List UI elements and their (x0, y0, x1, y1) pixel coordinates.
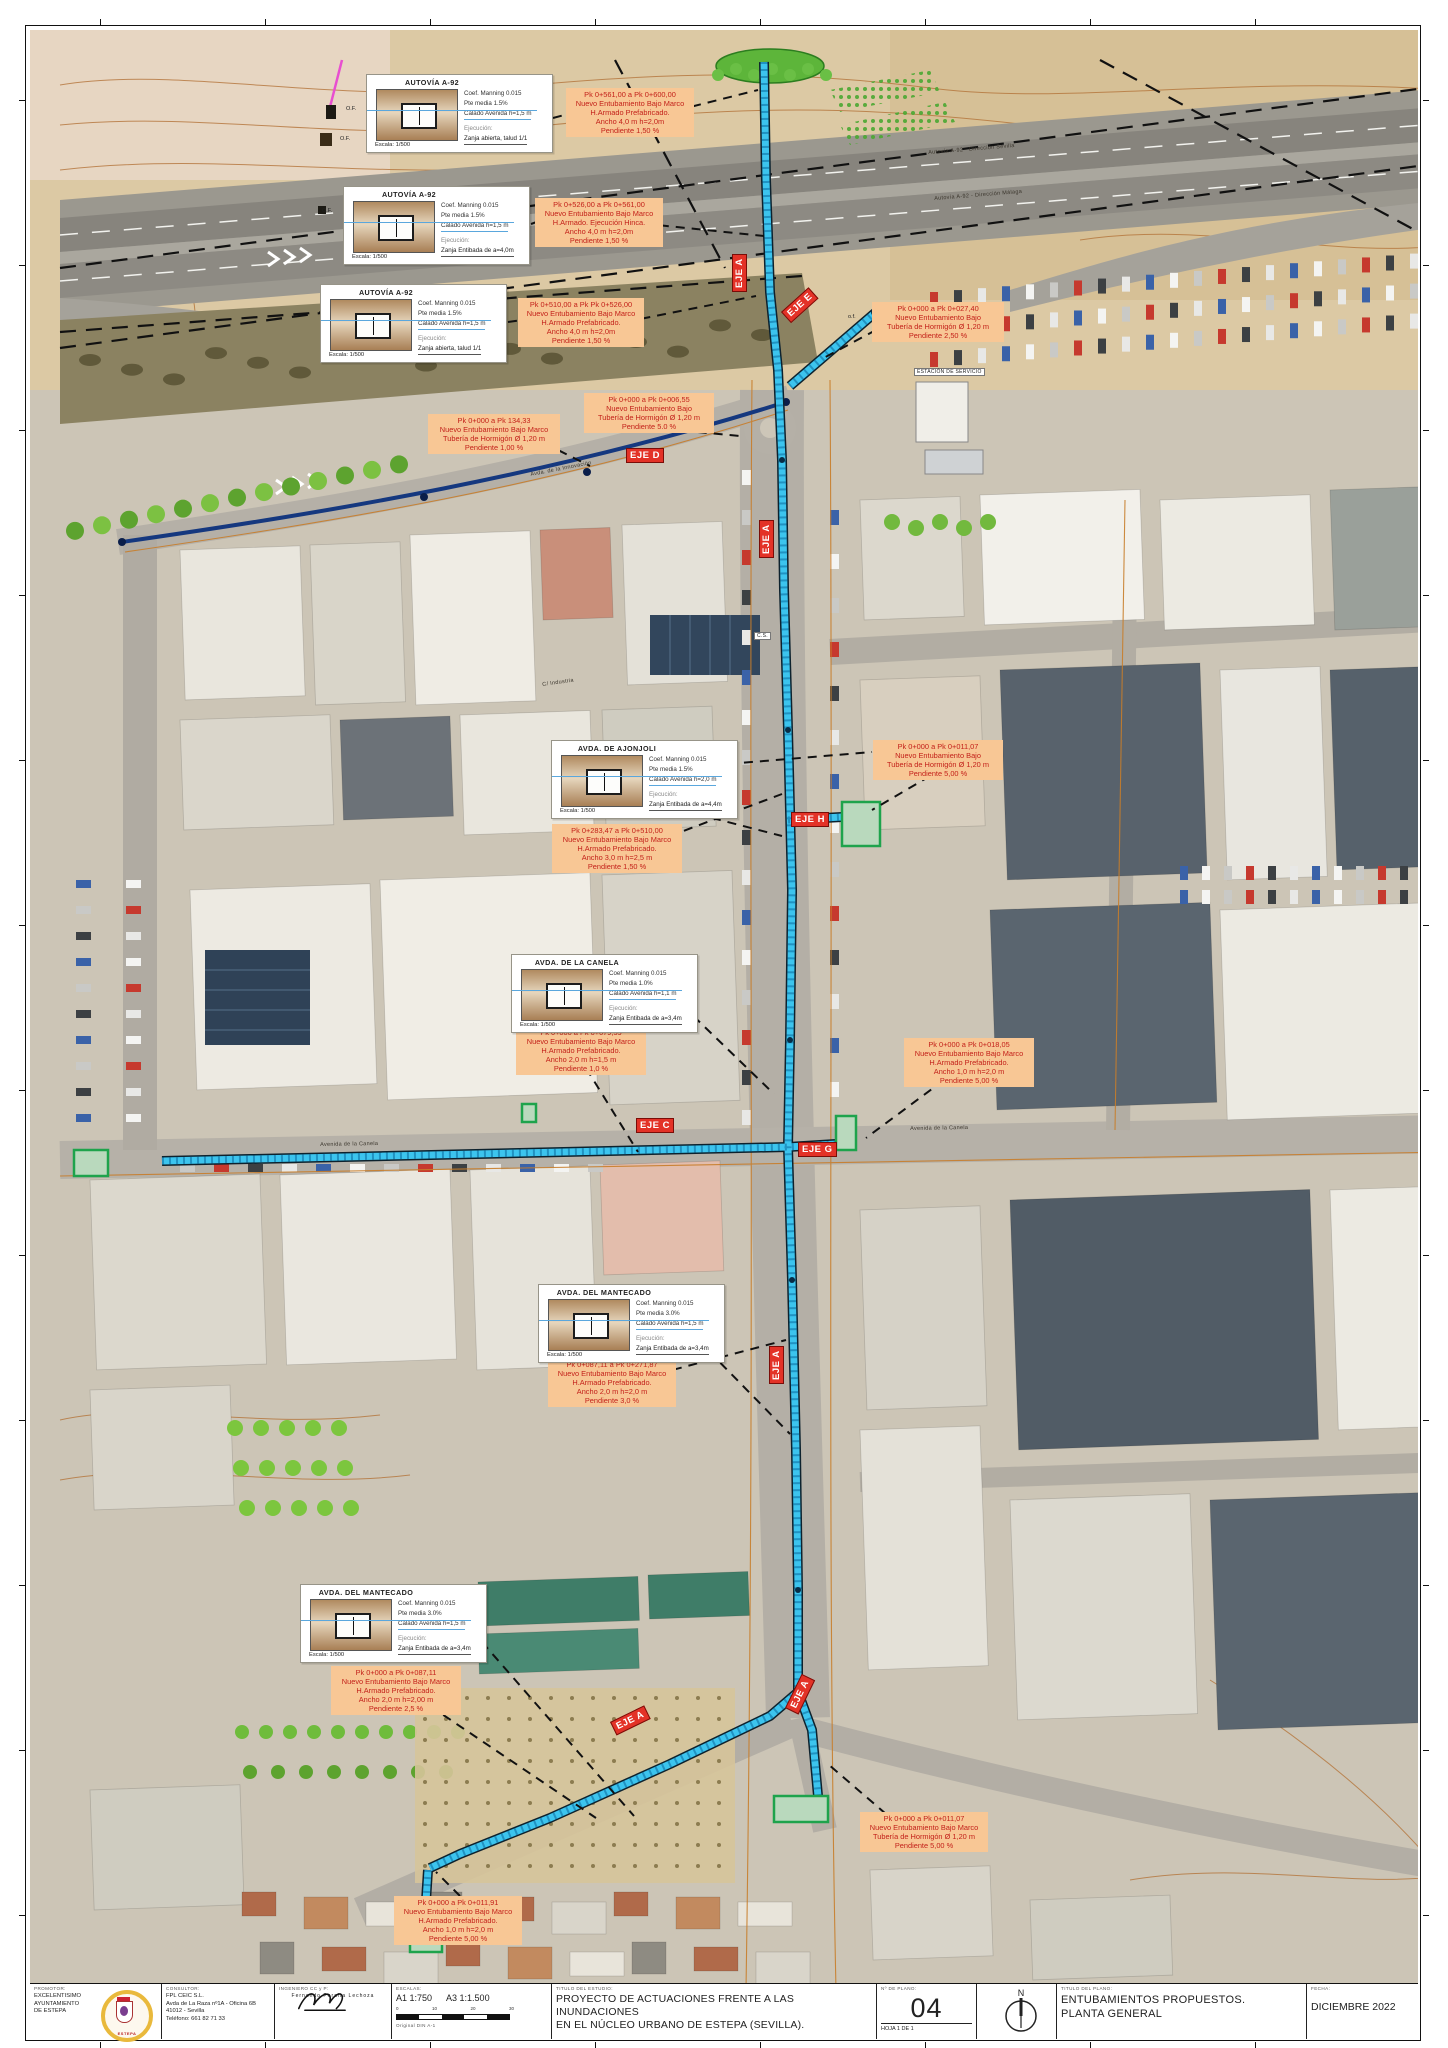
section-specs: Coef. Manning 0.015Pte media 3.0%Calado … (398, 1599, 484, 1655)
pte-media: Pte media 3.0% (636, 1309, 722, 1319)
pk-annotation-11: Pk 0+087,11 a Pk 0+271,87Nuevo Entubamie… (548, 1358, 676, 1407)
pk-annotation-line: Pk 0+000 a Pk 0+087,11 (334, 1668, 458, 1677)
estepa-coat-of-arms: ESTEPA (101, 1990, 153, 2042)
coef-manning: Coef. Manning 0.015 (418, 299, 504, 309)
box-culvert-icon (546, 983, 582, 1009)
escala-note: Escala: 1/500 (352, 254, 387, 260)
pk-annotation-line: H.Armado Prefabricado. (569, 108, 691, 117)
pk-annotation-line: Ancho 4,0 m h=2,0m (521, 327, 641, 336)
box-culvert-icon (573, 1313, 609, 1339)
pk-annotation-line: Pk 0+000 a Pk 0+011,07 (876, 742, 1000, 751)
escala-note: Escala: 1/500 (375, 142, 410, 148)
pk-annotation-line: H.Armado Prefabricado. (551, 1378, 673, 1387)
titulo-plano-line-1: ENTUBAMIENTOS PROPUESTOS. (1061, 1993, 1302, 2007)
pk-annotation-line: Tubería de Hormigón Ø 1,20 m (876, 760, 1000, 769)
escala-a1: A1 1:750 (396, 1993, 432, 2003)
pk-annotation-14: Pk 0+000 a Pk 0+011,91Nuevo Entubamiento… (394, 1896, 522, 1945)
box-culvert-icon (335, 1613, 371, 1639)
pk-annotation-line: Pendiente 2,5 % (334, 1704, 458, 1713)
street-label-6: Avenida de la Canela (910, 1125, 968, 1132)
scalebar-tick: 20 (470, 2006, 475, 2011)
titulo-estudio-label: TITULO DEL ESTUDIO: (556, 1986, 872, 1991)
cross-section-drawing (330, 299, 412, 351)
ejecucion-value: Zanja abierta, talud 1/1 (464, 134, 550, 145)
water-level-line (301, 1620, 471, 1621)
cross-section-drawing (310, 1599, 392, 1651)
coef-manning: Coef. Manning 0.015 (464, 89, 550, 99)
section-specs: Coef. Manning 0.015Pte media 3.0%Calado … (636, 1299, 722, 1355)
of-marker-3: O.F. (322, 208, 332, 214)
cross-section-box-4: AVDA. DE AJONJOLICoef. Manning 0.015Pte … (551, 740, 738, 819)
cross-section-drawing (521, 969, 603, 1021)
pk-annotation-line: Tubería de Hormigón Ø 1,20 m (875, 322, 1001, 331)
escala-note: Escala: 1/500 (520, 1022, 555, 1028)
pk-annotation-line: Pendiente 1,50 % (538, 236, 660, 245)
scale-bar (396, 2014, 510, 2020)
eje-label-eje-a: EJE A (732, 254, 747, 292)
pk-annotation-line: H.Armado Prefabricado. (907, 1058, 1031, 1067)
pk-annotation-line: H.Armado Prefabricado. (397, 1916, 519, 1925)
consultor-cell: CONSULTOR: FPL CEIC S.L. Avda de La Raza… (162, 1984, 275, 2039)
titulo-estudio-line-1: PROYECTO DE ACTUACIONES FRENTE A LAS INU… (556, 1993, 872, 2019)
consultor-line-4: Teléfono: 661 82 71 33 (166, 2016, 270, 2024)
scalebar-tick: 0 (396, 2006, 399, 2011)
escalas-label: ESCALAS: (396, 1986, 547, 1991)
eje-label-eje-g: EJE G (798, 1142, 837, 1157)
pk-annotation-3: Pk 0+510,00 a Pk Pk 0+526,00Nuevo Entuba… (518, 298, 644, 347)
ejecucion-label: Ejecución: (464, 124, 550, 134)
titulo-plano-line-2: PLANTA GENERAL (1061, 2007, 1302, 2021)
pk-annotation-4: Pk 0+000 a Pk 0+027,40Nuevo Entubamiento… (872, 302, 1004, 342)
pk-annotation-line: Pk 0+000 a Pk 0+018,05 (907, 1040, 1031, 1049)
scalebar-ticks: 0102030 (396, 2006, 514, 2011)
titulo-estudio-cell: TITULO DEL ESTUDIO: PROYECTO DE ACTUACIO… (552, 1984, 877, 2039)
pk-annotation-line: Ancho 4,0 m h=2,0m (538, 227, 660, 236)
pk-annotation-5: Pk 0+000 a Pk 134,33Nuevo Entubamiento B… (428, 414, 560, 454)
fecha-value: DICIEMBRE 2022 (1311, 2001, 1414, 2013)
water-level-line (512, 990, 682, 991)
eje-label-eje-c: EJE C (636, 1118, 674, 1133)
cross-section-box-3: AUTOVÍA A-92Coef. Manning 0.015Pte media… (320, 284, 507, 363)
pk-annotation-line: Pendiente 1,50 % (555, 862, 679, 871)
titulo-plano-label: TITULO DEL PLANO: (1061, 1986, 1302, 1991)
pk-annotation-line: Tubería de Hormigón Ø 1,20 m (587, 413, 711, 422)
pk-annotation-13: Pk 0+000 a Pk 0+011,07Nuevo Entubamiento… (860, 1812, 988, 1852)
titulo-plano-cell: TITULO DEL PLANO: ENTUBAMIENTOS PROPUEST… (1057, 1984, 1307, 2039)
water-level-line (539, 1320, 709, 1321)
section-title: AUTOVÍA A-92 (354, 190, 464, 199)
scalebar-tick: 30 (509, 2006, 514, 2011)
pk-annotation-line: Nuevo Entubamiento Bajo Marco (555, 835, 679, 844)
plan-sheet: EJE AEJE EEJE DEJE AEJE HEJE CEJE GEJE A… (0, 0, 1448, 2048)
street-label-8: C.S. (754, 632, 771, 640)
title-block: PROMOTOR: EXCELENTISIMO AYUNTAMIENTO DE … (30, 1983, 1418, 2039)
pk-annotation-line: H.Armado Prefabricado. (334, 1686, 458, 1695)
consultor-line-1: FPL CEIC S.L. (166, 1993, 270, 2001)
sheet-frame (25, 25, 1421, 2041)
pk-annotation-line: Ancho 1,0 m h=2,0 m (397, 1925, 519, 1934)
north-letter: N (1018, 1988, 1025, 1998)
promotor-label: PROMOTOR: (34, 1986, 157, 1991)
water-level-line (552, 776, 722, 777)
pk-annotation-line: Pendiente 5,00 % (907, 1076, 1031, 1085)
ejecucion-value: Zanja Entibada de a=3,4m (636, 1344, 722, 1355)
consultor-label: CONSULTOR: (166, 1986, 270, 1991)
pk-annotation-8: Pk 0+283,47 a Pk 0+510,00Nuevo Entubamie… (552, 824, 682, 873)
num-plano-cell: Nº DE PLANO: 04 HOJA 1 DE 1 (877, 1984, 977, 2039)
pk-annotation-line: Ancho 2,0 m h=1,5 m (519, 1055, 643, 1064)
coef-manning: Coef. Manning 0.015 (609, 969, 695, 979)
of-marker-1: O.F. (346, 106, 356, 112)
pk-annotation-line: Nuevo Entubamiento Bajo (587, 404, 711, 413)
pk-annotation-line: Pendiente 3,0 % (551, 1396, 673, 1405)
pk-annotation-line: Tubería de Hormigón Ø 1,20 m (863, 1832, 985, 1841)
ejecucion-value: Zanja Entibada de a=4,0m (441, 246, 527, 257)
ingeniero-cell: INGENIERO CC y P: Fernando Peralta Lecho… (275, 1984, 392, 2039)
fecha-cell: FECHA: DICIEMBRE 2022 (1307, 1984, 1418, 2039)
pk-annotation-line: Pk 0+510,00 a Pk Pk 0+526,00 (521, 300, 641, 309)
ejecucion-label: Ejecución: (398, 1634, 484, 1644)
pk-annotation-line: Ancho 1,0 m h=2,0 m (907, 1067, 1031, 1076)
box-culvert-icon (401, 103, 437, 129)
pk-annotation-line: Pk 0+561,00 a Pk 0+600,00 (569, 90, 691, 99)
pk-annotation-line: Pk 0+526,00 a Pk 0+561,00 (538, 200, 660, 209)
ejecucion-value: Zanja Entibada de a=4,4m (649, 800, 735, 811)
street-label-5: Avenida de la Canela (320, 1141, 378, 1148)
pk-annotation-2: Pk 0+526,00 a Pk 0+561,00Nuevo Entubamie… (535, 198, 663, 247)
ejecucion-label: Ejecución: (609, 1004, 695, 1014)
pk-annotation-10: Pk 0+000 a Pk 0+018,05Nuevo Entubamiento… (904, 1038, 1034, 1087)
pk-annotation-line: Ancho 3,0 m h=2,5 m (555, 853, 679, 862)
section-specs: Coef. Manning 0.015Pte media 1.5%Calado … (649, 755, 735, 811)
water-level-line (344, 222, 514, 223)
pte-media: Pte media 1.0% (609, 979, 695, 989)
box-culvert-icon (586, 769, 622, 795)
section-title: AUTOVÍA A-92 (331, 288, 441, 297)
pk-annotation-line: Pendiente 1,0 % (519, 1064, 643, 1073)
eje-label-eje-h: EJE H (791, 812, 829, 827)
pk-annotation-line: H.Armado Prefabricado. (521, 318, 641, 327)
pte-media: Pte media 1.5% (418, 309, 504, 319)
pk-annotation-line: Ancho 2,0 m h=2,0 m (551, 1387, 673, 1396)
section-specs: Coef. Manning 0.015Pte media 1.5%Calado … (418, 299, 504, 355)
box-culvert-icon (378, 215, 414, 241)
coef-manning: Coef. Manning 0.015 (398, 1599, 484, 1609)
ejecucion-label: Ejecución: (649, 790, 735, 800)
pk-annotation-line: Pendiente 1,00 % (431, 443, 557, 452)
section-title: AVDA. DEL MANTECADO (311, 1588, 421, 1597)
pk-annotation-line: Pk 0+000 a Pk 0+006,55 (587, 395, 711, 404)
pk-annotation-line: Nuevo Entubamiento Bajo Marco (863, 1823, 985, 1832)
cross-section-box-7: AVDA. DEL MANTECADOCoef. Manning 0.015Pt… (300, 1584, 487, 1663)
eje-label-eje-d: EJE D (626, 448, 664, 463)
pk-annotation-1: Pk 0+561,00 a Pk 0+600,00Nuevo Entubamie… (566, 88, 694, 137)
promotor-cell: PROMOTOR: EXCELENTISIMO AYUNTAMIENTO DE … (30, 1984, 162, 2039)
ejecucion-value: Zanja abierta, talud 1/1 (418, 344, 504, 355)
pk-annotation-line: Nuevo Entubamiento Bajo Marco (521, 309, 641, 318)
pk-annotation-line: Pk 0+000 a Pk 134,33 (431, 416, 557, 425)
cross-section-drawing (548, 1299, 630, 1351)
street-label-7: ESTACIÓN DE SERVICIO (914, 368, 985, 376)
eje-label-eje-a: EJE A (759, 520, 774, 558)
pk-annotation-line: Nuevo Entubamiento Bajo Marco (569, 99, 691, 108)
escala-note: Escala: 1/500 (309, 1652, 344, 1658)
water-level-line (367, 110, 537, 111)
escalas-cell: ESCALAS: A1 1:750 A3 1:1.500 0102030 Ori… (392, 1984, 552, 2039)
fecha-label: FECHA: (1311, 1986, 1414, 1991)
pte-media: Pte media 1.5% (441, 211, 527, 221)
crest-figure (120, 2006, 128, 2016)
pk-annotation-line: Pendiente 5,00 % (397, 1934, 519, 1943)
escala-a3: A3 1:1.500 (446, 1993, 490, 2003)
hoja-value: HOJA 1 DE 1 (881, 2023, 972, 2032)
section-title: AVDA. DE LA CANELA (522, 958, 632, 967)
titulo-estudio-line-2: EN EL NÚCLEO URBANO DE ESTEPA (SEVILLA). (556, 2019, 872, 2032)
north-cell: N (977, 1984, 1057, 2039)
cross-section-drawing (561, 755, 643, 807)
box-culvert-icon (355, 313, 391, 339)
pk-annotation-line: H.Armado Prefabricado. (519, 1046, 643, 1055)
coef-manning: Coef. Manning 0.015 (649, 755, 735, 765)
pk-annotation-line: Pendiente 1,50 % (521, 336, 641, 345)
pk-annotation-line: Pk 0+000 a Pk 0+011,91 (397, 1898, 519, 1907)
pk-annotation-6: Pk 0+000 a Pk 0+006,55Nuevo Entubamiento… (584, 393, 714, 433)
pk-annotation-line: Pk 0+000 a Pk 0+011,07 (863, 1814, 985, 1823)
pk-annotation-line: H.Armado Prefabricado. (555, 844, 679, 853)
cross-section-box-2: AUTOVÍA A-92Coef. Manning 0.015Pte media… (343, 186, 530, 265)
pk-annotation-line: Pendiente 1,50 % (569, 126, 691, 135)
pk-annotation-line: Pendiente 2,50 % (875, 331, 1001, 340)
section-title: AVDA. DE AJONJOLI (562, 744, 672, 753)
ejecucion-label: Ejecución: (441, 236, 527, 246)
pte-media: Pte media 1.5% (649, 765, 735, 775)
num-plano-label: Nº DE PLANO: (881, 1986, 972, 1991)
consultor-line-3: 41012 - Sevilla (166, 2008, 270, 2016)
section-specs: Coef. Manning 0.015Pte media 1.5%Calado … (464, 89, 550, 145)
of-marker-2: O.F. (340, 136, 350, 142)
escala-note: Escala: 1/500 (329, 352, 364, 358)
pk-annotation-line: Nuevo Entubamiento Bajo (875, 313, 1001, 322)
ejecucion-value: Zanja Entibada de a=3,4m (609, 1014, 695, 1025)
pk-annotation-line: Nuevo Entubamiento Bajo Marco (519, 1037, 643, 1046)
cross-section-box-6: AVDA. DEL MANTECADOCoef. Manning 0.015Pt… (538, 1284, 725, 1363)
cross-section-drawing (353, 201, 435, 253)
pk-annotation-line: Nuevo Entubamiento Bajo Marco (431, 425, 557, 434)
coef-manning: Coef. Manning 0.015 (636, 1299, 722, 1309)
pk-annotation-line: Nuevo Entubamiento Bajo Marco (907, 1049, 1031, 1058)
crest-text: ESTEPA (105, 2031, 149, 2036)
section-specs: Coef. Manning 0.015Pte media 1.5%Calado … (441, 201, 527, 257)
pk-annotation-line: Pendiente 5.0 % (587, 422, 711, 431)
ejecucion-value: Zanja Entibada de a=3,4m (398, 1644, 484, 1655)
section-title: AUTOVÍA A-92 (377, 78, 487, 87)
pk-annotation-line: Ancho 4,0 m h=2,0m (569, 117, 691, 126)
pk-annotation-line: Pk 0+283,47 a Pk 0+510,00 (555, 826, 679, 835)
original-format: Original DIN A-1 (396, 2023, 547, 2028)
pk-annotation-line: Tubería de Hormigón Ø 1,20 m (431, 434, 557, 443)
crest-shield (116, 2001, 133, 2023)
ejecucion-label: Ejecución: (418, 334, 504, 344)
num-plano-value: 04 (881, 1993, 972, 2023)
pk-annotation-line: Nuevo Entubamiento Bajo Marco (538, 209, 660, 218)
of-marker-4: o.f. (848, 314, 856, 320)
consultor-line-2: Avda de La Raza nº1A - Oficina 6B (166, 2001, 270, 2009)
pk-annotation-12: Pk 0+000 a Pk 0+087,11Nuevo Entubamiento… (331, 1666, 461, 1715)
escala-note: Escala: 1/500 (560, 808, 595, 814)
pk-annotation-line: Nuevo Entubamiento Bajo Marco (397, 1907, 519, 1916)
pk-annotation-9: Pk 0+000 a Pk 0+079,59Nuevo Entubamiento… (516, 1026, 646, 1075)
escala-note: Escala: 1/500 (547, 1352, 582, 1358)
pte-media: Pte media 1.5% (464, 99, 550, 109)
scalebar-tick: 10 (432, 2006, 437, 2011)
pk-annotation-line: Nuevo Entubamiento Bajo Marco (551, 1369, 673, 1378)
pk-annotation-line: Nuevo Entubamiento Bajo (876, 751, 1000, 760)
section-title: AVDA. DEL MANTECADO (549, 1288, 659, 1297)
pte-media: Pte media 3.0% (398, 1609, 484, 1619)
section-specs: Coef. Manning 0.015Pte media 1.0%Calado … (609, 969, 695, 1025)
pk-annotation-line: H.Armado. Ejecución Hinca. (538, 218, 660, 227)
water-level-line (321, 320, 491, 321)
cross-section-box-1: AUTOVÍA A-92Coef. Manning 0.015Pte media… (366, 74, 553, 153)
pk-annotation-line: Pendiente 5,00 % (863, 1841, 985, 1850)
pk-annotation-line: Pk 0+000 a Pk 0+027,40 (875, 304, 1001, 313)
signature-icon (275, 1984, 375, 2012)
pk-annotation-7: Pk 0+000 a Pk 0+011,07Nuevo Entubamiento… (873, 740, 1003, 780)
pk-annotation-line: Ancho 2,0 m h=2,00 m (334, 1695, 458, 1704)
cross-section-box-5: AVDA. DE LA CANELACoef. Manning 0.015Pte… (511, 954, 698, 1033)
pk-annotation-line: Pendiente 5,00 % (876, 769, 1000, 778)
coef-manning: Coef. Manning 0.015 (441, 201, 527, 211)
north-arrow-icon: N (981, 1986, 1052, 2037)
eje-label-eje-a: EJE A (769, 1346, 784, 1384)
pk-annotation-line: Nuevo Entubamiento Bajo Marco (334, 1677, 458, 1686)
ejecucion-label: Ejecución: (636, 1334, 722, 1344)
cross-section-drawing (376, 89, 458, 141)
